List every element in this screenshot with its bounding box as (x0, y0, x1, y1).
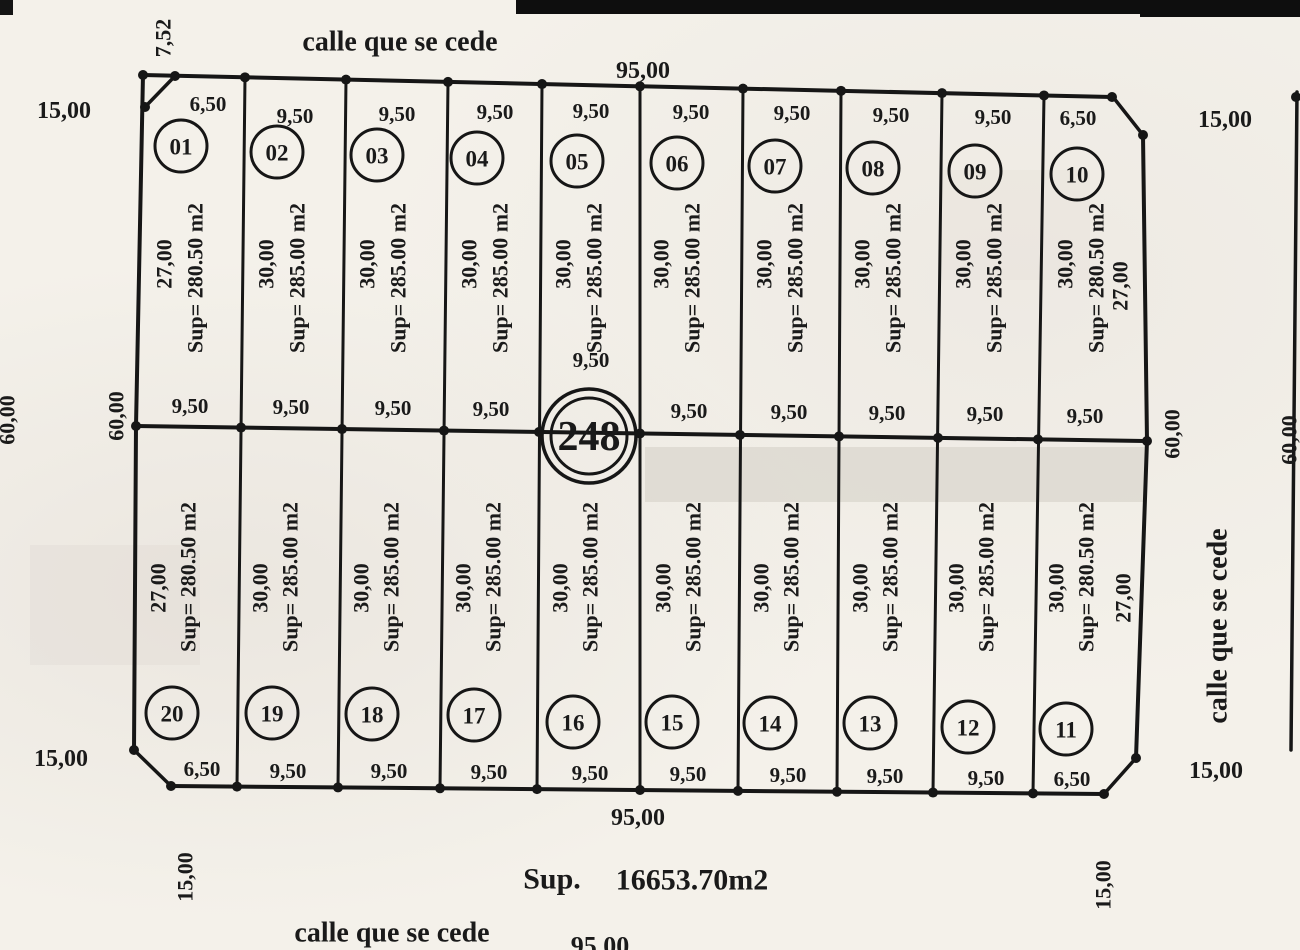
total-width-top: 95,00 (616, 58, 670, 84)
lot-area-label: Sup= 280.50 m2 (176, 502, 201, 652)
lot-number: 13 (859, 712, 882, 737)
lot-depth-label: 27,00 (152, 239, 177, 289)
total-area-label: Sup. (523, 863, 581, 896)
lot-number: 03 (366, 144, 389, 169)
lot-depth-label: 30,00 (248, 563, 273, 613)
lot-top-width-label: 9,50 (477, 100, 514, 124)
street-label-top: calle que se cede (302, 27, 497, 58)
block-outline (134, 74, 1297, 794)
lot-depth-label: 30,00 (355, 239, 380, 289)
lot-bottom-width-label: 9,50 (968, 766, 1005, 790)
side-dim-right-outer: 60,00 (1277, 415, 1300, 465)
lot-depth-label: 30,00 (451, 563, 476, 613)
street-label-right: calle que se cede (1203, 528, 1234, 723)
lot-bottom-width-label: 9,50 (572, 761, 609, 785)
side-dim-left-inner: 60,00 (104, 391, 129, 441)
lot-area-label: Sup= 285.00 m2 (878, 502, 903, 652)
lot-depth-label: 30,00 (551, 239, 576, 289)
lot-mid-width-label: 9,50 (967, 402, 1004, 426)
lot-number: 12 (957, 716, 980, 741)
corner-dim-top-left: 15,00 (37, 98, 91, 124)
block-number: 248 (558, 414, 621, 460)
lot-top-width-label: 9,50 (573, 99, 610, 123)
chamfer-bottom-left (134, 750, 171, 786)
lot-top-width-label: 9,50 (873, 103, 910, 127)
lot-bottom-width-label: 9,50 (371, 759, 408, 783)
lot-bottom-width-label: 9,50 (471, 760, 508, 784)
lot-depth-label: 30,00 (848, 563, 873, 613)
total-width-bottom: 95,00 (611, 805, 665, 831)
lot-number: 02 (266, 141, 289, 166)
lot-mid-width-label: 9,50 (473, 397, 510, 421)
lot-side-depth-label: 27,00 (1111, 573, 1136, 623)
lot-mid-width-label: 9,50 (375, 396, 412, 420)
lot-area-label: Sup= 285.00 m2 (582, 203, 607, 353)
lot-depth-label: 30,00 (254, 239, 279, 289)
total-area-value: 16653.70m2 (616, 864, 769, 897)
side-dim-right-inner: 60,00 (1160, 409, 1185, 459)
lot-depth-label: 30,00 (349, 563, 374, 613)
lot-area-label: Sup= 285.00 m2 (481, 502, 506, 652)
lot-number: 09 (964, 160, 987, 185)
lot-depth-label: 30,00 (951, 239, 976, 289)
lot-top-width-label: 6,50 (1060, 106, 1097, 130)
lot-top-width-label: 6,50 (190, 92, 227, 116)
lot-top-width-label: 9,50 (774, 101, 811, 125)
lot-area-label: Sup= 285.00 m2 (379, 502, 404, 652)
lot-number: 18 (361, 703, 384, 728)
lot-number: 14 (759, 712, 783, 737)
lot-number: 11 (1055, 718, 1077, 743)
lot-top-width-label: 9,50 (277, 104, 314, 128)
lot-number: 15 (661, 711, 684, 736)
lot-area-label: Sup= 285.00 m2 (881, 203, 906, 353)
lot-number: 10 (1066, 163, 1089, 188)
lot-top-width-label: 9,50 (379, 102, 416, 126)
lot-mid-width-label: 9,50 (671, 399, 708, 423)
lot-number: 07 (764, 155, 787, 180)
lot-number: 16 (562, 711, 585, 736)
lot-bottom-width-label: 9,50 (670, 762, 707, 786)
lot-depth-label: 30,00 (651, 563, 676, 613)
lot-number: 20 (161, 702, 184, 727)
street-dim-bottom-left: 15,00 (173, 852, 198, 902)
lot-area-label: Sup= 285.00 m2 (285, 203, 310, 353)
lot-depth-label: 30,00 (1053, 239, 1078, 289)
total-width-bottom-street: 95,00 (571, 932, 630, 950)
street-label-bottom: calle que se cede (294, 918, 489, 949)
lot-top-width-label: 9,50 (975, 105, 1012, 129)
lot-area-label: Sup= 285.00 m2 (681, 502, 706, 652)
lot-number: 01 (170, 135, 193, 160)
lot-mid-width-label: 9,50 (573, 348, 610, 372)
lot-depth-label: 30,00 (749, 563, 774, 613)
lot-area-label: Sup= 285.00 m2 (386, 203, 411, 353)
lot-top-width-label: 9,50 (673, 100, 710, 124)
lot-bottom-width-label: 9,50 (270, 759, 307, 783)
lot-area-label: Sup= 285.00 m2 (974, 502, 999, 652)
lot-depth-label: 30,00 (850, 239, 875, 289)
lot-bottom-width-label: 9,50 (867, 764, 904, 788)
lot-area-label: Sup= 285.00 m2 (779, 502, 804, 652)
lot-number: 05 (566, 150, 589, 175)
lot-area-label: Sup= 280.50 m2 (183, 203, 208, 353)
chamfer-top-right (1113, 97, 1143, 135)
lot-bottom-width-label: 9,50 (770, 763, 807, 787)
lot-area-label: Sup= 285.00 m2 (488, 203, 513, 353)
lot-depth-label: 30,00 (457, 239, 482, 289)
chamfer-top-left (145, 76, 175, 107)
lot-area-label: Sup= 280.50 m2 (1074, 502, 1099, 652)
chamfer-dim-label: 7,52 (151, 19, 176, 58)
lot-depth-label: 30,00 (1044, 563, 1069, 613)
lot-area-label: Sup= 285.00 m2 (578, 502, 603, 652)
lot-area-label: Sup= 285.00 m2 (982, 203, 1007, 353)
lot-area-label: Sup= 285.00 m2 (680, 203, 705, 353)
lot-number: 17 (463, 704, 486, 729)
lot-depth-label: 30,00 (548, 563, 573, 613)
corner-dim-top-right: 15,00 (1198, 107, 1252, 133)
corner-dim-bottom-right: 15,00 (1189, 758, 1243, 784)
lot-depth-label: 27,00 (146, 563, 171, 613)
block-number-badge: 248 (542, 389, 636, 483)
lot-bottom-width-label: 6,50 (184, 757, 221, 781)
corner-dim-bottom-left: 15,00 (34, 746, 88, 772)
plat-drawing: 6,500127,00Sup= 280.50 m29,509,500230,00… (0, 0, 1300, 950)
lot-mid-width-label: 9,50 (1067, 404, 1104, 428)
lot-number: 19 (261, 702, 284, 727)
lot-bottom-width-label: 6,50 (1054, 767, 1091, 791)
lot-depth-label: 30,00 (649, 239, 674, 289)
lot-depth-label: 30,00 (752, 239, 777, 289)
lot-mid-width-label: 9,50 (172, 394, 209, 418)
street-dim-bottom-right: 15,00 (1091, 860, 1116, 910)
lot-number: 08 (862, 157, 885, 182)
lot-mid-width-label: 9,50 (771, 400, 808, 424)
lot-number: 06 (666, 152, 689, 177)
lot-mid-width-label: 9,50 (273, 395, 310, 419)
chamfer-bottom-right (1104, 758, 1136, 794)
lot-mid-width-label: 9,50 (869, 401, 906, 425)
lot-area-label: Sup= 285.00 m2 (783, 203, 808, 353)
scanned-plat-page: 6,500127,00Sup= 280.50 m29,509,500230,00… (0, 0, 1300, 950)
lot-area-label: Sup= 285.00 m2 (278, 502, 303, 652)
lot-depth-label: 30,00 (944, 563, 969, 613)
lot-side-depth-label: 27,00 (1108, 261, 1133, 311)
side-dim-left-outer: 60,00 (0, 395, 20, 445)
lot-number: 04 (466, 147, 490, 172)
lot-area-label: Sup= 280.50 m2 (1084, 203, 1109, 353)
